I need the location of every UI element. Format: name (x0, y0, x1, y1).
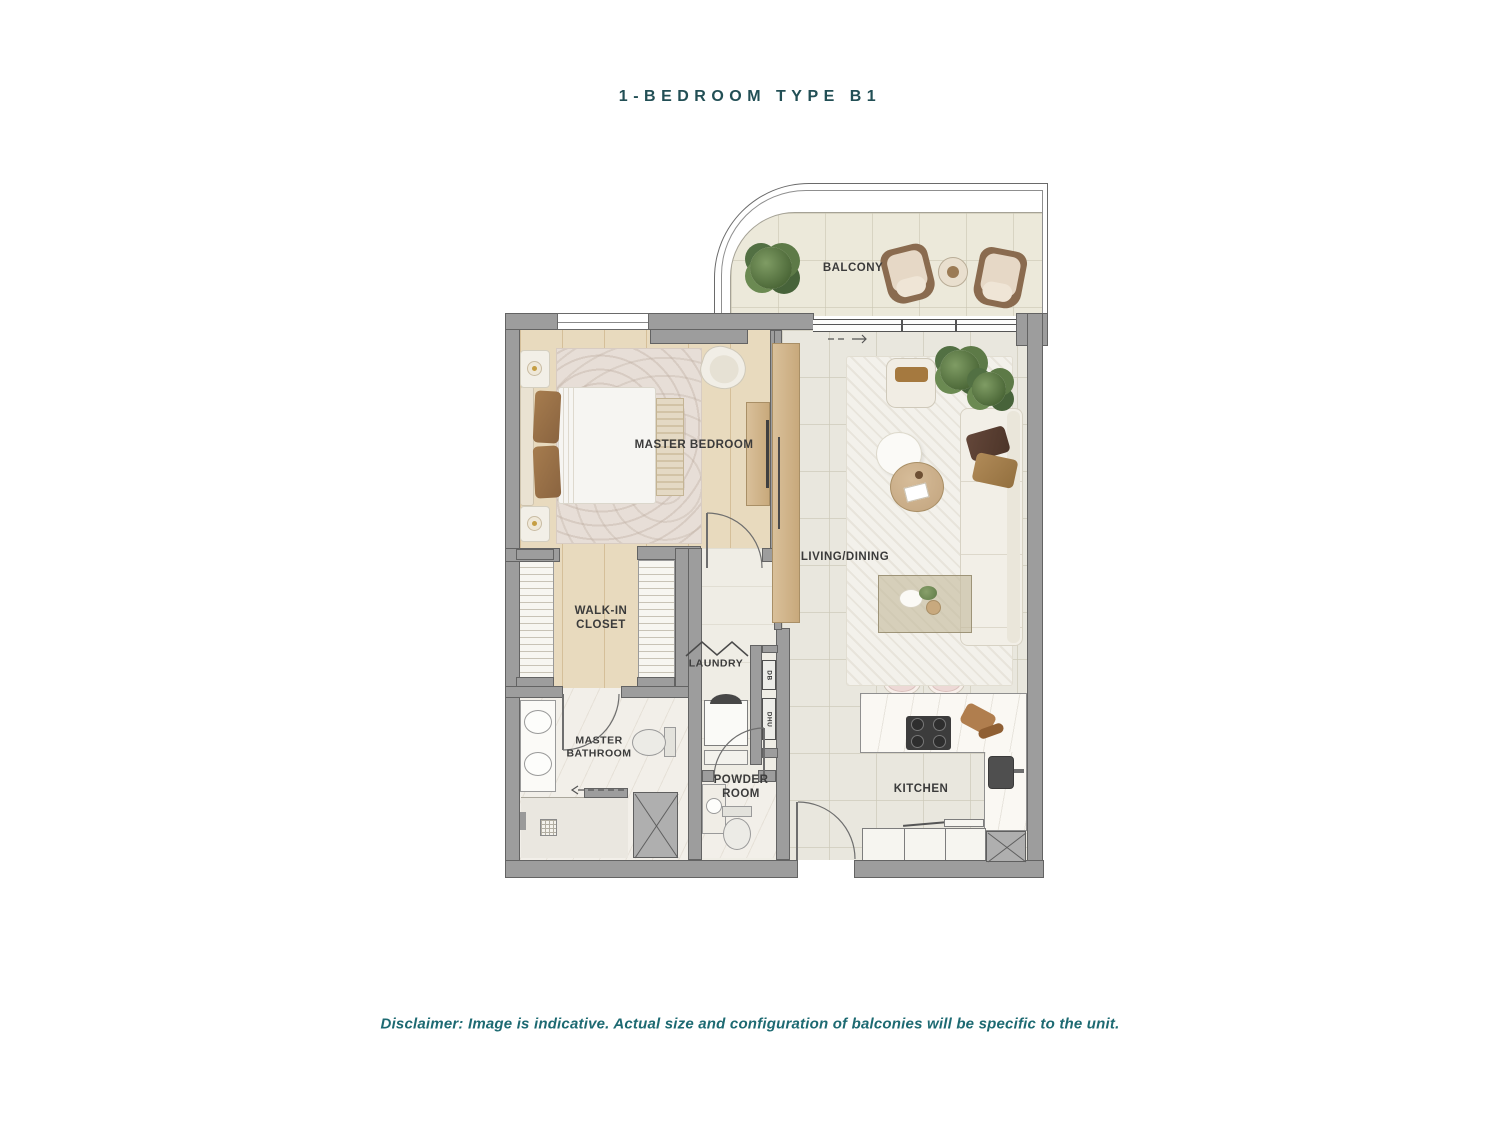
burner (933, 735, 946, 748)
duvet-folds (559, 388, 575, 503)
bathroom-sink-bottom (524, 752, 552, 776)
wall-bath-north-left (505, 686, 563, 698)
bathroom-door-leaf (562, 694, 564, 750)
coffee-table (890, 462, 944, 512)
tv-on-dresser (766, 420, 769, 488)
powder-toilet-bowl (723, 818, 751, 850)
bedroom-bulkhead (650, 329, 748, 344)
wall-bottom-a (505, 860, 798, 878)
bed-pillow-bottom (533, 445, 562, 498)
table-decor (947, 266, 959, 278)
shaft-x-mark (634, 793, 679, 859)
page-title: 1-BEDROOM TYPE B1 (619, 88, 881, 106)
burner (911, 735, 924, 748)
wall-right (1027, 313, 1043, 878)
entry-door-arc (796, 800, 858, 862)
closet-cap (516, 549, 554, 560)
magazine (904, 482, 930, 502)
serving-tray (926, 600, 941, 615)
balcony-sliding-door (813, 319, 1016, 332)
window-mullion (558, 322, 648, 323)
db-panel: DB (762, 660, 776, 690)
cabinet-divider (945, 829, 946, 860)
bed-pillow-top (533, 390, 562, 443)
cup (915, 471, 923, 479)
master-bedroom-label: MASTER BEDROOM (635, 439, 754, 453)
sliding-wood-panel (772, 343, 800, 623)
chair-cushion (706, 351, 742, 387)
shower-direction-arrow (566, 784, 628, 796)
bed-headboard (520, 386, 534, 506)
entry-door-leaf (796, 802, 798, 860)
sliding-door-divider (901, 320, 903, 331)
powder-room-label: POWDER ROOM (714, 774, 769, 802)
wall-top-b (648, 313, 814, 330)
balcony-label: BALCONY (823, 262, 883, 276)
shower-floor (521, 797, 628, 858)
living-dining-label: LIVING/DINING (801, 551, 889, 565)
wall-living-divider (776, 628, 790, 860)
sink-faucet (1014, 769, 1024, 773)
balcony-plant (750, 247, 792, 289)
wall-bath-north-right (621, 686, 691, 698)
laundry-bifold-doors (684, 639, 752, 659)
disclaimer-text: Disclaimer: Image is indicative. Actual … (381, 1016, 1120, 1033)
cooktop (906, 716, 951, 750)
bathroom-shaft (633, 792, 678, 858)
table-greens (919, 586, 937, 600)
db-panel-label: DB (765, 670, 772, 680)
powder-toilet-tank (722, 806, 752, 817)
burner (911, 718, 924, 731)
burner (933, 718, 946, 731)
bedroom-door-arc (705, 511, 767, 573)
kitchen-label: KITCHEN (894, 783, 949, 797)
closet-unit-right (638, 560, 675, 678)
master-bathroom-label: MASTER BATHROOM (566, 734, 631, 759)
shower-control (520, 812, 526, 830)
wall-central (688, 548, 702, 860)
panel-handle (778, 437, 780, 529)
kitchen-shelf (944, 819, 984, 827)
laundry-label: LAUNDRY (689, 658, 743, 671)
cabinet-divider (904, 829, 905, 860)
kitchen-base-cabinets (862, 828, 986, 861)
table-lamp-bottom (527, 516, 542, 531)
bathroom-toilet-bowl (632, 729, 666, 756)
wall-top-a (505, 313, 558, 330)
closet-unit-left (517, 560, 554, 678)
bedroom-window (557, 313, 649, 330)
table-lamp-top (527, 361, 542, 376)
niche-cap-top (762, 645, 778, 653)
walk-in-closet-label: WALK-IN CLOSET (575, 605, 628, 633)
living-armchair (886, 358, 936, 408)
armchair-cushion (895, 367, 928, 382)
living-plant-small (972, 372, 1006, 406)
dining-table (878, 575, 972, 633)
sliding-door-divider (955, 320, 957, 331)
kitchen-shaft (986, 831, 1026, 862)
bedroom-door-leaf (706, 513, 708, 568)
wall-left (505, 313, 520, 878)
powder-door-leaf (763, 728, 765, 778)
slide-direction-arrow (826, 333, 874, 345)
balcony-side-table (938, 257, 968, 287)
sliding-door-track (813, 324, 1016, 325)
floor-plan-page: 1-BEDROOM TYPE B1 Disclaimer: Image is i… (0, 0, 1500, 1125)
bathroom-sink-top (524, 710, 552, 734)
kitchen-sink (988, 756, 1014, 789)
shower-drain (540, 819, 557, 836)
dhu-panel-label: DHU (766, 711, 773, 727)
shaft-x-mark (987, 832, 1027, 863)
